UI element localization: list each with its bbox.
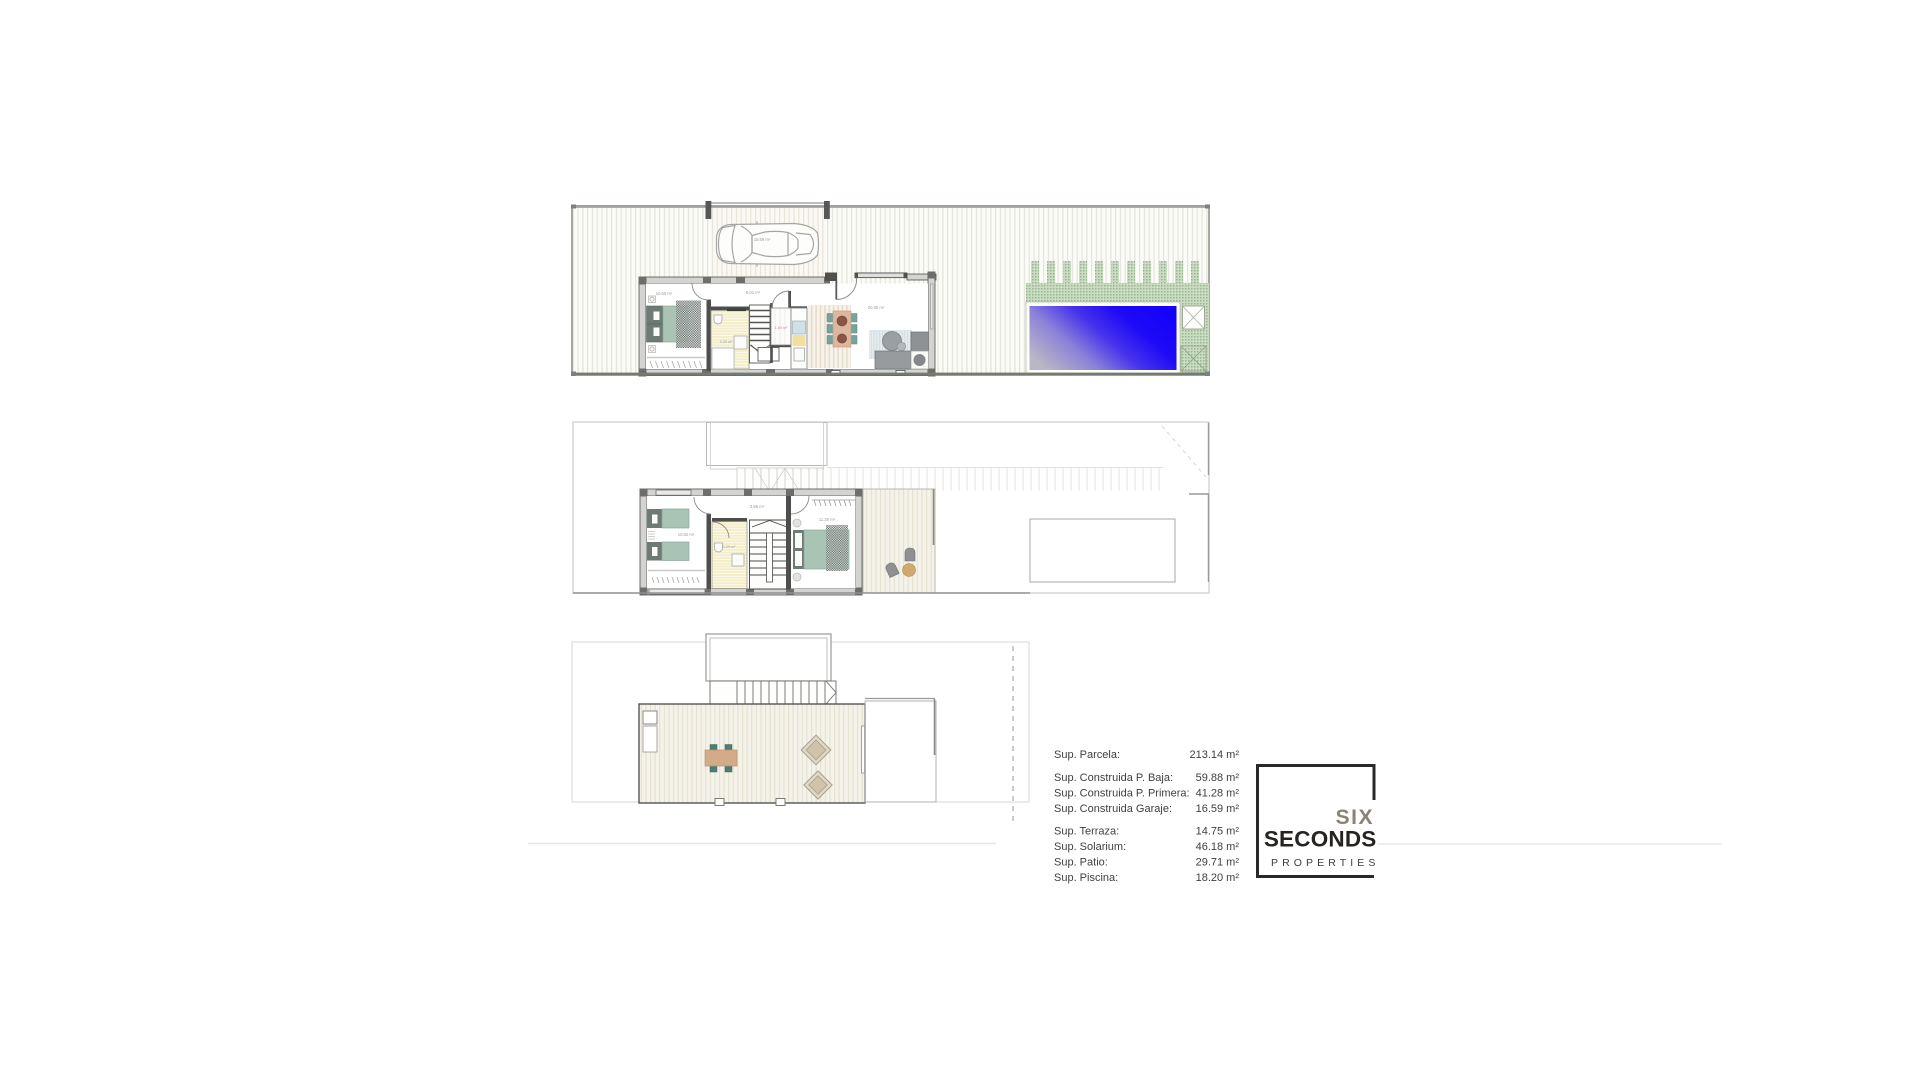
svg-text:SECONDS: SECONDS <box>1264 827 1377 852</box>
svg-text:46.18 m²: 46.18 m² <box>1196 841 1240 853</box>
svg-text:3.96 m²: 3.96 m² <box>750 504 765 509</box>
svg-text:Sup. Terraza:: Sup. Terraza: <box>1054 826 1119 838</box>
svg-text:Sup. Construida P. Baja:: Sup. Construida P. Baja: <box>1054 772 1173 784</box>
svg-text:41.28 m²: 41.28 m² <box>1196 788 1240 800</box>
svg-text:Sup. Parcela:: Sup. Parcela: <box>1054 749 1120 761</box>
svg-text:11.30 m²: 11.30 m² <box>819 517 836 522</box>
svg-text:PROPERTIES: PROPERTIES <box>1271 857 1380 869</box>
svg-text:18.20 m²: 18.20 m² <box>1196 872 1240 884</box>
svg-text:59.88 m²: 59.88 m² <box>1196 772 1240 784</box>
svg-text:Sup. Construida Garaje:: Sup. Construida Garaje: <box>1054 803 1172 815</box>
svg-text:14.75 m²: 14.75 m² <box>1196 826 1240 838</box>
svg-text:1.60 m²: 1.60 m² <box>775 326 789 330</box>
svg-text:Sup. Piscina:: Sup. Piscina: <box>1054 872 1118 884</box>
svg-text:Sup. Construida P. Primera:: Sup. Construida P. Primera: <box>1054 788 1190 800</box>
svg-text:10.82 m²: 10.82 m² <box>678 532 695 537</box>
svg-text:16.59 m²: 16.59 m² <box>1196 803 1240 815</box>
svg-text:29.71 m²: 29.71 m² <box>1196 857 1240 869</box>
svg-text:16.59 m²: 16.59 m² <box>754 237 771 242</box>
svg-text:20.30 m²: 20.30 m² <box>868 305 885 310</box>
svg-text:6.01 m²: 6.01 m² <box>746 290 761 295</box>
svg-text:4.29 m²: 4.29 m² <box>720 340 734 344</box>
svg-text:4.29 m²: 4.29 m² <box>723 545 737 549</box>
svg-text:Sup. Patio:: Sup. Patio: <box>1054 857 1108 869</box>
svg-text:213.14 m²: 213.14 m² <box>1189 749 1239 761</box>
svg-text:10.60 m²: 10.60 m² <box>656 291 673 296</box>
svg-text:Sup. Solarium:: Sup. Solarium: <box>1054 841 1126 853</box>
